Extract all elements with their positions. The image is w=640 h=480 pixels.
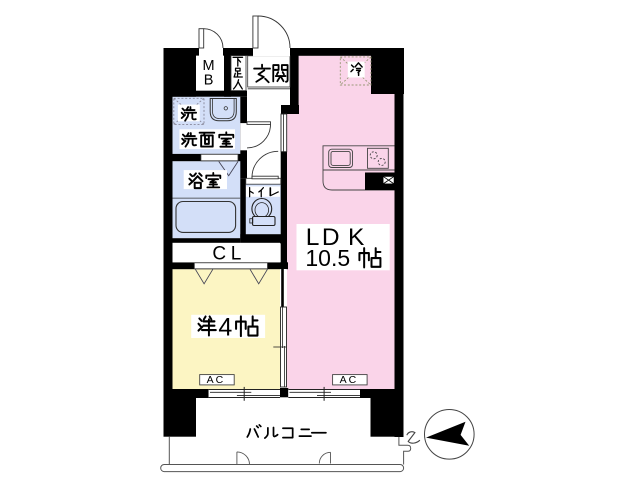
svg-text:B: B bbox=[204, 73, 214, 89]
svg-text:AC: AC bbox=[340, 374, 359, 386]
svg-text:K: K bbox=[348, 224, 365, 251]
svg-text:4: 4 bbox=[218, 314, 232, 342]
svg-text:10.5: 10.5 bbox=[305, 245, 350, 271]
svg-text:CL: CL bbox=[212, 243, 246, 264]
svg-text:AC: AC bbox=[207, 374, 226, 386]
